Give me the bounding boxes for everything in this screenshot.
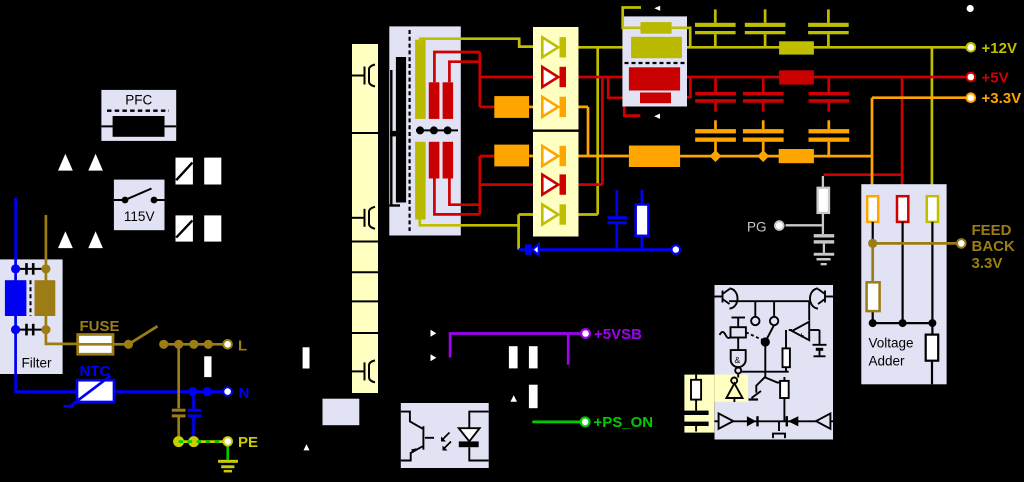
svg-text:+5V: +5V [982,70,1009,87]
svg-text:PG: PG [747,220,767,235]
svg-text:+PS_ON: +PS_ON [594,414,654,431]
svg-text:&: & [735,355,741,365]
svg-text:3.3V: 3.3V [972,255,1003,272]
svg-text:+: + [799,331,804,341]
svg-text:Filter: Filter [22,356,53,371]
svg-text:BACK: BACK [972,238,1015,255]
svg-text:PFC: PFC [125,93,152,108]
svg-text:Adder: Adder [869,354,906,369]
svg-text:PE: PE [238,434,258,451]
svg-text:Voltage: Voltage [869,336,914,351]
svg-text:+5VSB: +5VSB [594,326,642,343]
svg-text:L: L [238,338,247,355]
svg-text:115V: 115V [124,209,155,224]
svg-text:+12V: +12V [982,40,1017,57]
svg-text:FEED: FEED [972,222,1012,239]
svg-text:+3.3V: +3.3V [982,90,1022,107]
svg-text:FUSE: FUSE [80,318,120,335]
svg-text:NTC: NTC [80,363,111,380]
svg-text:N: N [239,385,250,402]
